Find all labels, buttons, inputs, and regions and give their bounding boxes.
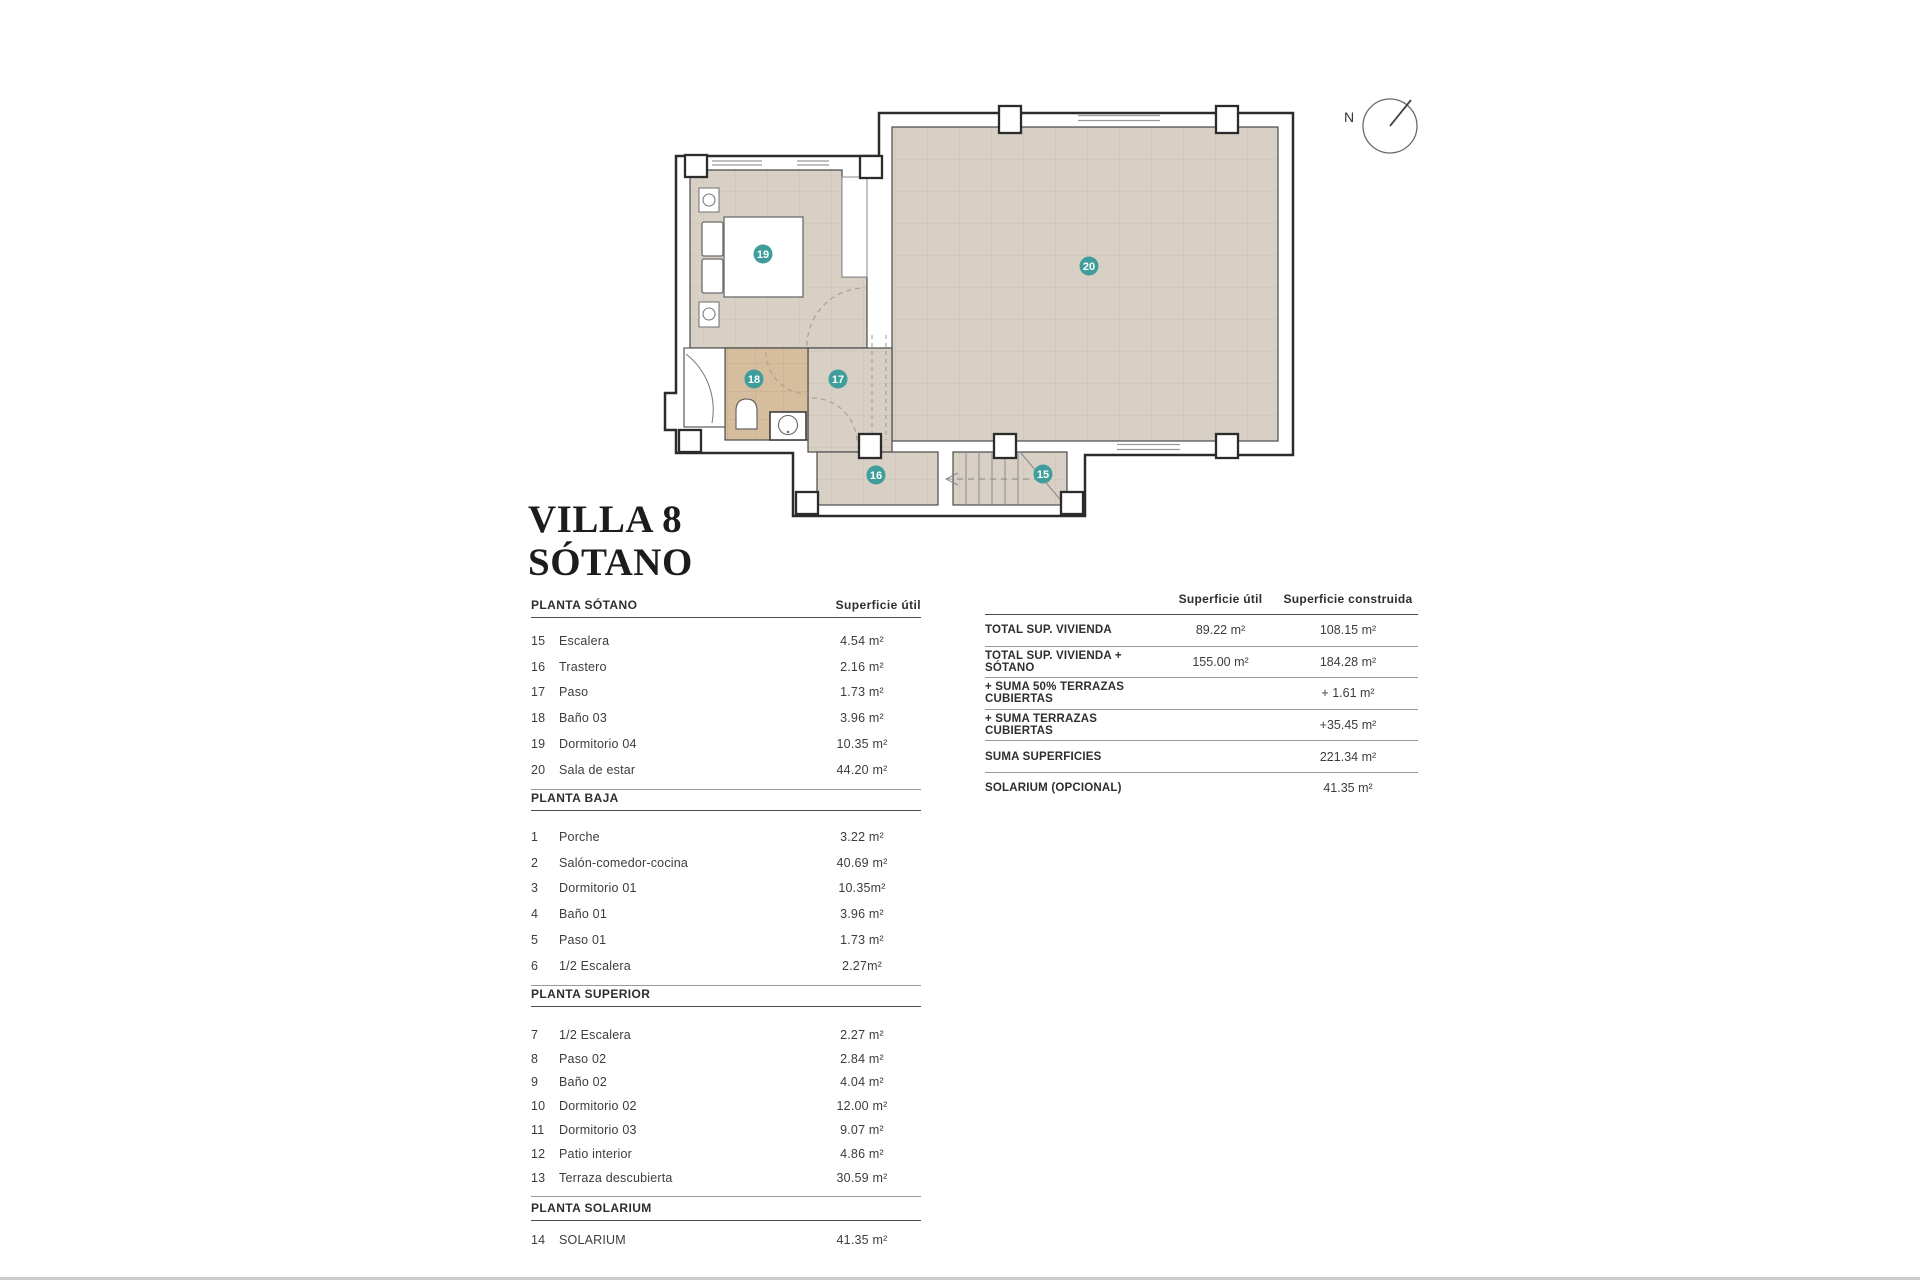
table-planta-sotano: PLANTA SÓTANO Superficie útil 15Escalera… — [531, 598, 921, 790]
table-row: 20Sala de estar44.20 m² — [531, 757, 921, 783]
summary-row: + SUMA TERRAZAS CUBIERTAS +35.45 m² — [985, 710, 1418, 742]
section-header: PLANTA SÓTANO — [531, 598, 637, 612]
svg-text:15: 15 — [1037, 469, 1049, 481]
sink-icon — [770, 412, 806, 440]
page: 15 16 17 18 19 20 N VILLA 8 SÓTANO PLANT… — [0, 0, 1920, 1280]
table-row: 15Escalera4.54 m² — [531, 628, 921, 654]
table-planta-solarium: PLANTA SOLARIUM 14SOLARIUM41.35 m² — [531, 1201, 921, 1259]
toilet-icon — [736, 399, 757, 429]
table-row: 10Dormitorio 0212.00 m² — [531, 1094, 921, 1118]
summary-col2-header: Superficie construida — [1278, 592, 1418, 606]
summary-row: TOTAL SUP. VIVIENDA + SÓTANO 155.00 m² 1… — [985, 647, 1418, 679]
table-row: 5Paso 011.73 m² — [531, 927, 921, 953]
table-row: 8Paso 022.84 m² — [531, 1047, 921, 1071]
room-badge-17: 17 — [829, 370, 848, 389]
vestibule-floor — [684, 348, 725, 427]
table-row: 61/2 Escalera2.27m² — [531, 953, 921, 979]
svg-text:17: 17 — [832, 374, 844, 386]
closet — [842, 177, 867, 277]
summary-row: TOTAL SUP. VIVIENDA 89.22 m² 108.15 m² — [985, 615, 1418, 647]
table-row: 4Baño 013.96 m² — [531, 901, 921, 927]
section-header: PLANTA SUPERIOR — [531, 987, 650, 1001]
room-badge-15: 15 — [1034, 465, 1053, 484]
room-badge-18: 18 — [745, 370, 764, 389]
summary-row: SUMA SUPERFICIES 221.34 m² — [985, 741, 1418, 773]
table-row: 9Baño 024.04 m² — [531, 1071, 921, 1095]
section-header: PLANTA SOLARIUM — [531, 1201, 652, 1215]
svg-text:18: 18 — [748, 374, 760, 386]
page-title-line1: VILLA 8 — [528, 498, 693, 541]
summary-table: Superficie útil Superficie construida TO… — [985, 592, 1418, 804]
table-row: 11Dormitorio 039.07 m² — [531, 1118, 921, 1142]
table-row: 3Dormitorio 0110.35m² — [531, 876, 921, 902]
table-row: 2Salón-comedor-cocina40.69 m² — [531, 850, 921, 876]
summary-row: SOLARIUM (OPCIONAL) 41.35 m² — [985, 773, 1418, 804]
north-label: N — [1344, 109, 1354, 125]
summary-row: + SUMA 50% TERRAZAS CUBIERTAS + 1.61 m² — [985, 678, 1418, 710]
svg-text:19: 19 — [757, 249, 769, 261]
value-column-header: Superficie útil — [836, 598, 921, 612]
summary-col1-header: Superficie útil — [1163, 592, 1278, 606]
table-planta-superior: PLANTA SUPERIOR 71/2 Escalera2.27 m² 8Pa… — [531, 987, 921, 1197]
room-badge-20: 20 — [1080, 257, 1099, 276]
table-row: 16Trastero2.16 m² — [531, 654, 921, 680]
page-title: VILLA 8 SÓTANO — [528, 498, 693, 584]
section-header: PLANTA BAJA — [531, 791, 619, 805]
page-title-line2: SÓTANO — [528, 541, 693, 584]
table-planta-baja: PLANTA BAJA 1Porche3.22 m² 2Salón-comedo… — [531, 791, 921, 986]
table-row: 1Porche3.22 m² — [531, 824, 921, 850]
table-row: 14SOLARIUM41.35 m² — [531, 1227, 921, 1253]
room-badge-19: 19 — [754, 245, 773, 264]
floor-plan: 15 16 17 18 19 20 N — [0, 0, 1920, 1280]
summary-header-row: Superficie útil Superficie construida — [985, 592, 1418, 615]
svg-text:16: 16 — [870, 470, 882, 482]
room-sala-floor — [892, 127, 1278, 441]
table-row: 12Patio interior4.86 m² — [531, 1142, 921, 1166]
room-badge-16: 16 — [867, 466, 886, 485]
table-row: 17Paso1.73 m² — [531, 680, 921, 706]
north-compass: N — [1344, 99, 1417, 153]
table-row: 13Terraza descubierta30.59 m² — [531, 1166, 921, 1190]
table-row: 18Baño 033.96 m² — [531, 705, 921, 731]
table-row: 71/2 Escalera2.27 m² — [531, 1023, 921, 1047]
svg-text:20: 20 — [1083, 261, 1095, 273]
table-row: 19Dormitorio 0410.35 m² — [531, 731, 921, 757]
